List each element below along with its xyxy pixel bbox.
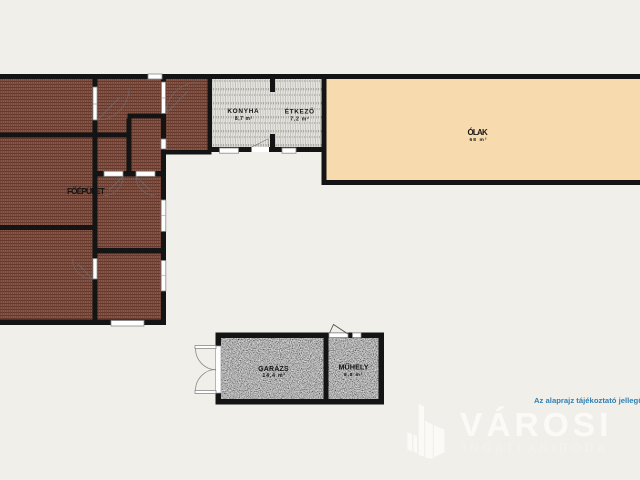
svg-text:INGATLANIRODA: INGATLANIRODA [463,443,609,455]
svg-text:VÁROSI: VÁROSI [460,406,612,444]
svg-text:14,4 m²: 14,4 m² [262,373,285,379]
svg-text:68 m²: 68 m² [470,137,487,143]
svg-text:GARÁZS: GARÁZS [258,364,289,373]
svg-text:8,7 m²: 8,7 m² [235,116,253,122]
svg-text:7,2 m²: 7,2 m² [290,116,309,122]
svg-text:6,8 m²: 6,8 m² [344,372,363,378]
svg-text:KONYHA: KONYHA [227,108,259,115]
svg-text:MŰHELY: MŰHELY [339,363,369,372]
svg-text:FŐÉPÜLET: FŐÉPÜLET [67,185,105,196]
svg-text:ÓLAK: ÓLAK [467,128,488,137]
svg-text:Az alaprajz tájékoztató jelleg: Az alaprajz tájékoztató jellegű [534,396,640,405]
svg-text:ÉTKEZŐ: ÉTKEZŐ [285,106,314,115]
